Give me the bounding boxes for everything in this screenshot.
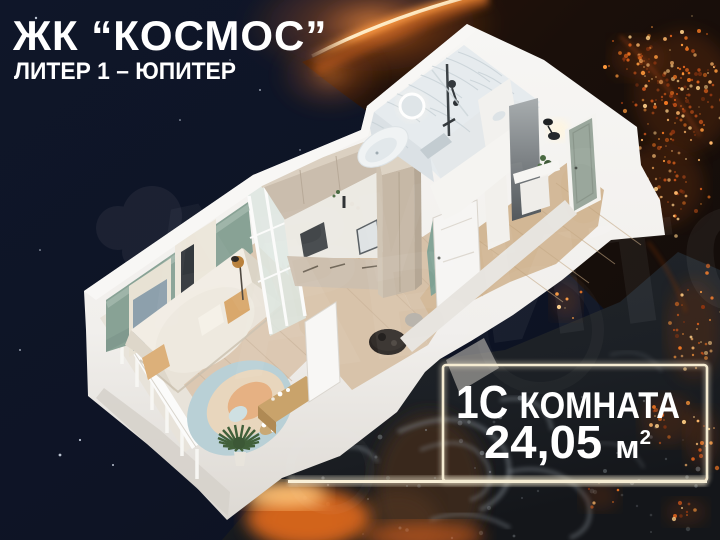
- svg-text:ЖК “КОСМОС”: ЖК “КОСМОС”: [12, 12, 327, 59]
- svg-text:ЛИТЕР 1 – ЮПИТЕР: ЛИТЕР 1 – ЮПИТЕР: [14, 58, 236, 85]
